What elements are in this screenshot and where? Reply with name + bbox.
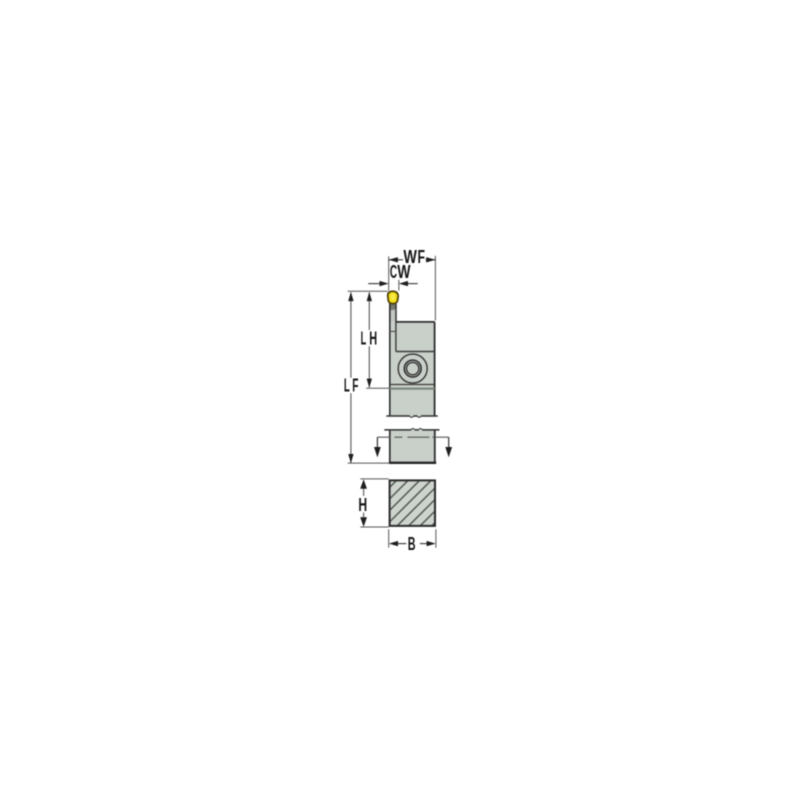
svg-text:F: F — [352, 375, 358, 396]
svg-text:L: L — [361, 328, 367, 349]
svg-text:H: H — [369, 328, 377, 349]
svg-text:W: W — [397, 261, 411, 282]
svg-text:L: L — [344, 375, 350, 396]
svg-text:C: C — [390, 261, 397, 282]
svg-text:H: H — [358, 494, 367, 515]
svg-text:B: B — [408, 533, 416, 554]
svg-text:F: F — [418, 246, 426, 267]
